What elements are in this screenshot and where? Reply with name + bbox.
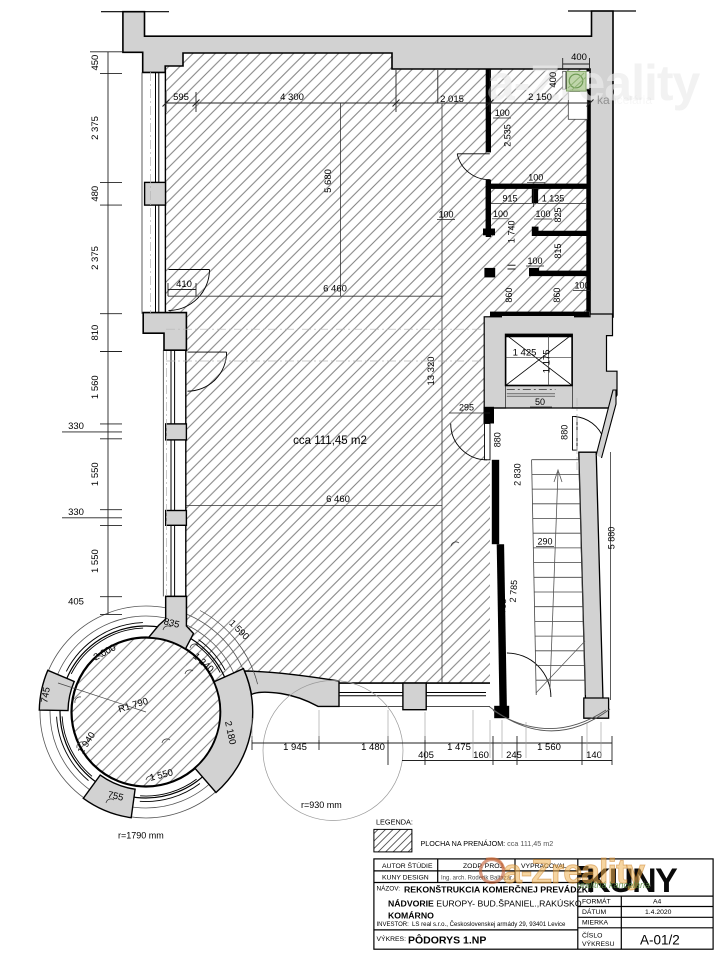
svg-text:NÁZOV:: NÁZOV: <box>377 884 401 893</box>
svg-text:4 300: 4 300 <box>280 92 304 103</box>
svg-text:100: 100 <box>438 210 453 220</box>
svg-text:1 740: 1 740 <box>507 221 517 244</box>
svg-text:140: 140 <box>586 750 602 761</box>
svg-text:5 680: 5 680 <box>323 169 334 193</box>
svg-text:PÔDORYS 1.NP: PÔDORYS 1.NP <box>408 934 486 947</box>
svg-text:405: 405 <box>418 750 434 761</box>
svg-text:2 150: 2 150 <box>528 92 552 103</box>
svg-text:realitná kancelária: realitná kancelária <box>577 880 650 890</box>
svg-text:880: 880 <box>560 425 570 440</box>
svg-text:330: 330 <box>68 507 84 518</box>
svg-text:860: 860 <box>504 288 514 303</box>
svg-text:A-01/2: A-01/2 <box>640 933 680 948</box>
svg-text:2 535: 2 535 <box>503 124 513 147</box>
svg-text:2 785: 2 785 <box>508 580 520 603</box>
svg-text:2 795: 2 795 <box>497 598 509 621</box>
svg-text:160: 160 <box>473 750 489 761</box>
svg-text:50: 50 <box>535 397 545 407</box>
svg-text:ka: ka <box>597 93 610 107</box>
svg-text:1 560: 1 560 <box>537 742 561 753</box>
svg-text:2 375: 2 375 <box>90 116 101 140</box>
svg-text:2 375: 2 375 <box>90 246 101 270</box>
svg-text:100: 100 <box>495 108 510 118</box>
svg-text:VÝKRESU: VÝKRESU <box>582 939 615 948</box>
svg-text:6 460: 6 460 <box>326 494 350 505</box>
svg-text:1 175: 1 175 <box>542 350 553 374</box>
svg-text:100: 100 <box>527 256 542 266</box>
svg-text:825: 825 <box>553 207 563 222</box>
svg-text:1 135: 1 135 <box>542 194 565 204</box>
svg-text:KOMÁRNO: KOMÁRNO <box>388 911 434 921</box>
svg-text:ncelária: ncelária <box>610 93 652 107</box>
svg-text:PLOCHA NA PRENÁJOM: cca 111,45: PLOCHA NA PRENÁJOM: cca 111,45 m2 <box>421 839 554 848</box>
svg-text:r=1790 mm: r=1790 mm <box>118 831 164 841</box>
svg-text:VÝKRES:: VÝKRES: <box>377 934 407 943</box>
svg-text:860: 860 <box>552 288 562 303</box>
svg-text:400: 400 <box>548 72 559 88</box>
svg-text:480: 480 <box>90 186 101 202</box>
svg-text:ČÍSLO: ČÍSLO <box>582 931 602 940</box>
svg-text:405: 405 <box>68 597 84 608</box>
svg-text:LS real s.r.o., Československe: LS real s.r.o., Československej armády 2… <box>412 921 566 928</box>
svg-text:DÁTUM: DÁTUM <box>582 907 607 916</box>
svg-text:MIERKA: MIERKA <box>582 920 609 927</box>
svg-text:1 425: 1 425 <box>513 348 537 359</box>
svg-text:100: 100 <box>528 172 543 182</box>
svg-text:915: 915 <box>502 194 517 204</box>
svg-text:810: 810 <box>90 325 101 341</box>
svg-text:880: 880 <box>492 432 502 447</box>
svg-text:6 460: 6 460 <box>323 284 347 295</box>
svg-text:1.4.2020: 1.4.2020 <box>645 909 672 916</box>
svg-text:410: 410 <box>176 279 192 290</box>
svg-text:INVESTOR:: INVESTOR: <box>377 922 410 928</box>
svg-text:1 560: 1 560 <box>90 375 101 399</box>
svg-text:100: 100 <box>535 209 550 219</box>
svg-text:AUTOR ŠTÚDIE: AUTOR ŠTÚDIE <box>382 861 433 870</box>
svg-text:245: 245 <box>506 750 522 761</box>
svg-text:LEGENDA:: LEGENDA: <box>376 818 413 827</box>
svg-text:100: 100 <box>493 209 508 219</box>
svg-text:1 475: 1 475 <box>447 742 471 753</box>
svg-text:595: 595 <box>173 92 189 103</box>
svg-text:1 480: 1 480 <box>361 742 385 753</box>
svg-text:1 550: 1 550 <box>90 549 101 573</box>
svg-text:2 015: 2 015 <box>440 94 464 105</box>
svg-text:290: 290 <box>537 537 552 547</box>
svg-text:330: 330 <box>68 421 84 432</box>
svg-text:815: 815 <box>553 243 563 258</box>
svg-text:100: 100 <box>574 280 589 290</box>
svg-text:1 945: 1 945 <box>283 742 307 753</box>
svg-text:cca 111,45 m2: cca 111,45 m2 <box>293 435 367 447</box>
svg-text:NÁDVORIE EUROPY- BUD.ŠPANIEL.,: NÁDVORIE EUROPY- BUD.ŠPANIEL.,RAKÚSKO <box>388 899 582 909</box>
svg-text:2 830: 2 830 <box>512 463 522 486</box>
svg-text:1 550: 1 550 <box>90 462 101 486</box>
svg-text:400: 400 <box>571 52 587 63</box>
svg-text:KUNY DESIGN: KUNY DESIGN <box>382 875 429 882</box>
svg-text:5 880: 5 880 <box>607 527 617 550</box>
svg-text:r=930 mm: r=930 mm <box>301 800 342 810</box>
svg-text:295: 295 <box>459 403 474 413</box>
svg-text:450: 450 <box>90 55 101 71</box>
